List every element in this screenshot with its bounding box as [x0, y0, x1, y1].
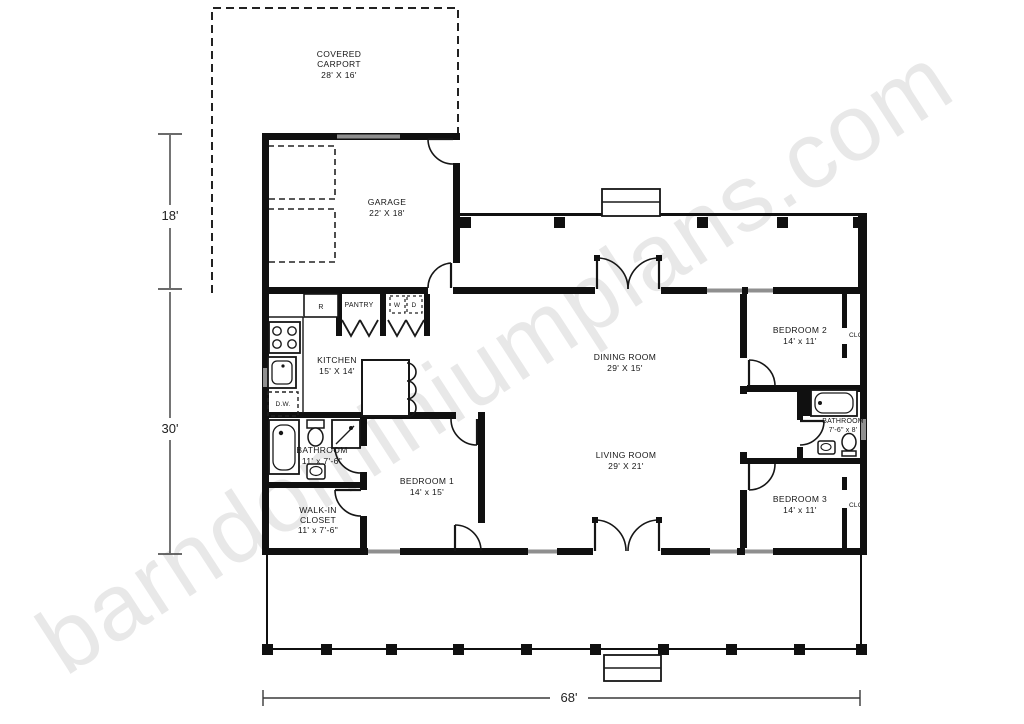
bathroom-sink [307, 464, 325, 479]
kitchen-label: KITCHEN 15' X 14' [317, 355, 357, 376]
watermark-text: barndominiumplans.com [19, 25, 970, 694]
bedroom2-label: BEDROOM 2 14' x 11' [773, 325, 827, 346]
porch-column [726, 644, 737, 655]
back-steps [602, 189, 660, 216]
porch-column [453, 644, 464, 655]
carport-label: COVERED CARPORT 28' X 16' [317, 49, 362, 80]
porch-column [262, 644, 273, 655]
svg-text:14' x 11': 14' x 11' [783, 505, 817, 515]
bathtub [269, 420, 299, 474]
svg-text:BATHROOM: BATHROOM [822, 418, 864, 425]
svg-text:GARAGE: GARAGE [368, 197, 406, 207]
bedroom3-label: BEDROOM 3 14' x 11' [773, 494, 827, 515]
porch-column [658, 644, 669, 655]
svg-text:WALK-IN: WALK-IN [299, 505, 337, 515]
closet-label-bedroom3: CLO [849, 502, 863, 509]
porch-column [794, 644, 805, 655]
dishwasher-label: D.W. [276, 401, 291, 408]
porch-column [386, 644, 397, 655]
walkin-closet-label: WALK-IN CLOSET 11' x 7'-6" [298, 505, 338, 535]
porch-column [853, 217, 864, 228]
porch-column [521, 644, 532, 655]
svg-text:15' X 14': 15' X 14' [319, 366, 355, 376]
toilet [842, 434, 856, 457]
closet-label-bedroom2: CLO [849, 332, 863, 339]
refrigerator-label: R [318, 304, 323, 311]
floor-plan-page: barndominiumplans.com [0, 0, 1024, 724]
svg-text:BATHROOM: BATHROOM [296, 445, 347, 455]
porch-column [697, 217, 708, 228]
svg-text:7'-6" x 8': 7'-6" x 8' [829, 427, 858, 434]
garage-storage-areas [268, 146, 335, 262]
porch-column [777, 217, 788, 228]
bedroom2-window [748, 289, 773, 293]
svg-text:22' X 18': 22' X 18' [369, 208, 405, 218]
svg-text:CARPORT: CARPORT [317, 59, 361, 69]
svg-text:29' X 21': 29' X 21' [608, 461, 644, 471]
washer-label: W [394, 302, 401, 309]
svg-text:11' x 7'-6": 11' x 7'-6" [302, 456, 342, 466]
svg-text:11' x 7'-6": 11' x 7'-6" [298, 525, 338, 535]
svg-text:KITCHEN: KITCHEN [317, 355, 357, 365]
svg-text:COVERED: COVERED [317, 49, 362, 59]
porch-column [856, 644, 867, 655]
floor-plan-drawing: barndominiumplans.com [0, 0, 1024, 724]
svg-text:BEDROOM 3: BEDROOM 3 [773, 494, 827, 504]
bathroom-sink [818, 441, 835, 454]
svg-text:14' x 11': 14' x 11' [783, 336, 817, 346]
front-porch [262, 555, 867, 681]
kitchen-island [362, 360, 416, 417]
garage-window [337, 135, 400, 139]
master-bathroom-label: BATHROOM 11' x 7'-6" [296, 445, 347, 466]
living-window [528, 550, 557, 554]
dimension-label: 68' [561, 690, 578, 705]
porch-column [590, 644, 601, 655]
bedroom1-window [368, 550, 400, 554]
svg-text:LIVING ROOM: LIVING ROOM [596, 450, 657, 460]
dining-room-label: DINING ROOM 29' X 15' [594, 352, 656, 373]
pantry-label: PANTRY [345, 302, 374, 309]
svg-text:28' X 16': 28' X 16' [321, 70, 357, 80]
bathtub [811, 390, 857, 416]
bedroom3-window [745, 550, 773, 554]
svg-text:BEDROOM 2: BEDROOM 2 [773, 325, 827, 335]
stove [269, 322, 300, 353]
svg-text:14' x 15': 14' x 15' [410, 487, 444, 497]
porch-column [321, 644, 332, 655]
shower [332, 420, 360, 448]
front-steps [604, 655, 661, 681]
dryer-label: D [412, 302, 417, 309]
living-room-label: LIVING ROOM 29' X 21' [596, 450, 657, 471]
dimension-label: 18' [162, 208, 179, 223]
dining-window [707, 289, 742, 293]
kitchen-sink [268, 357, 296, 388]
toilet [307, 420, 324, 446]
living-window [710, 550, 737, 554]
svg-text:29' X 15': 29' X 15' [607, 363, 643, 373]
porch-column [460, 217, 471, 228]
svg-text:DINING ROOM: DINING ROOM [594, 352, 656, 362]
dimension-label: 30' [162, 421, 179, 436]
garage-label: GARAGE 22' X 18' [368, 197, 406, 218]
dimension-overall-width: 68' [263, 690, 860, 706]
bedroom1-label: BEDROOM 1 14' x 15' [400, 476, 454, 497]
dimension-garage-depth: 18' [158, 134, 182, 289]
porch-column [554, 217, 565, 228]
svg-text:BEDROOM 1: BEDROOM 1 [400, 476, 454, 486]
svg-text:CLOSET: CLOSET [300, 515, 336, 525]
bathroom2-label: BATHROOM 7'-6" x 8' [822, 418, 864, 434]
